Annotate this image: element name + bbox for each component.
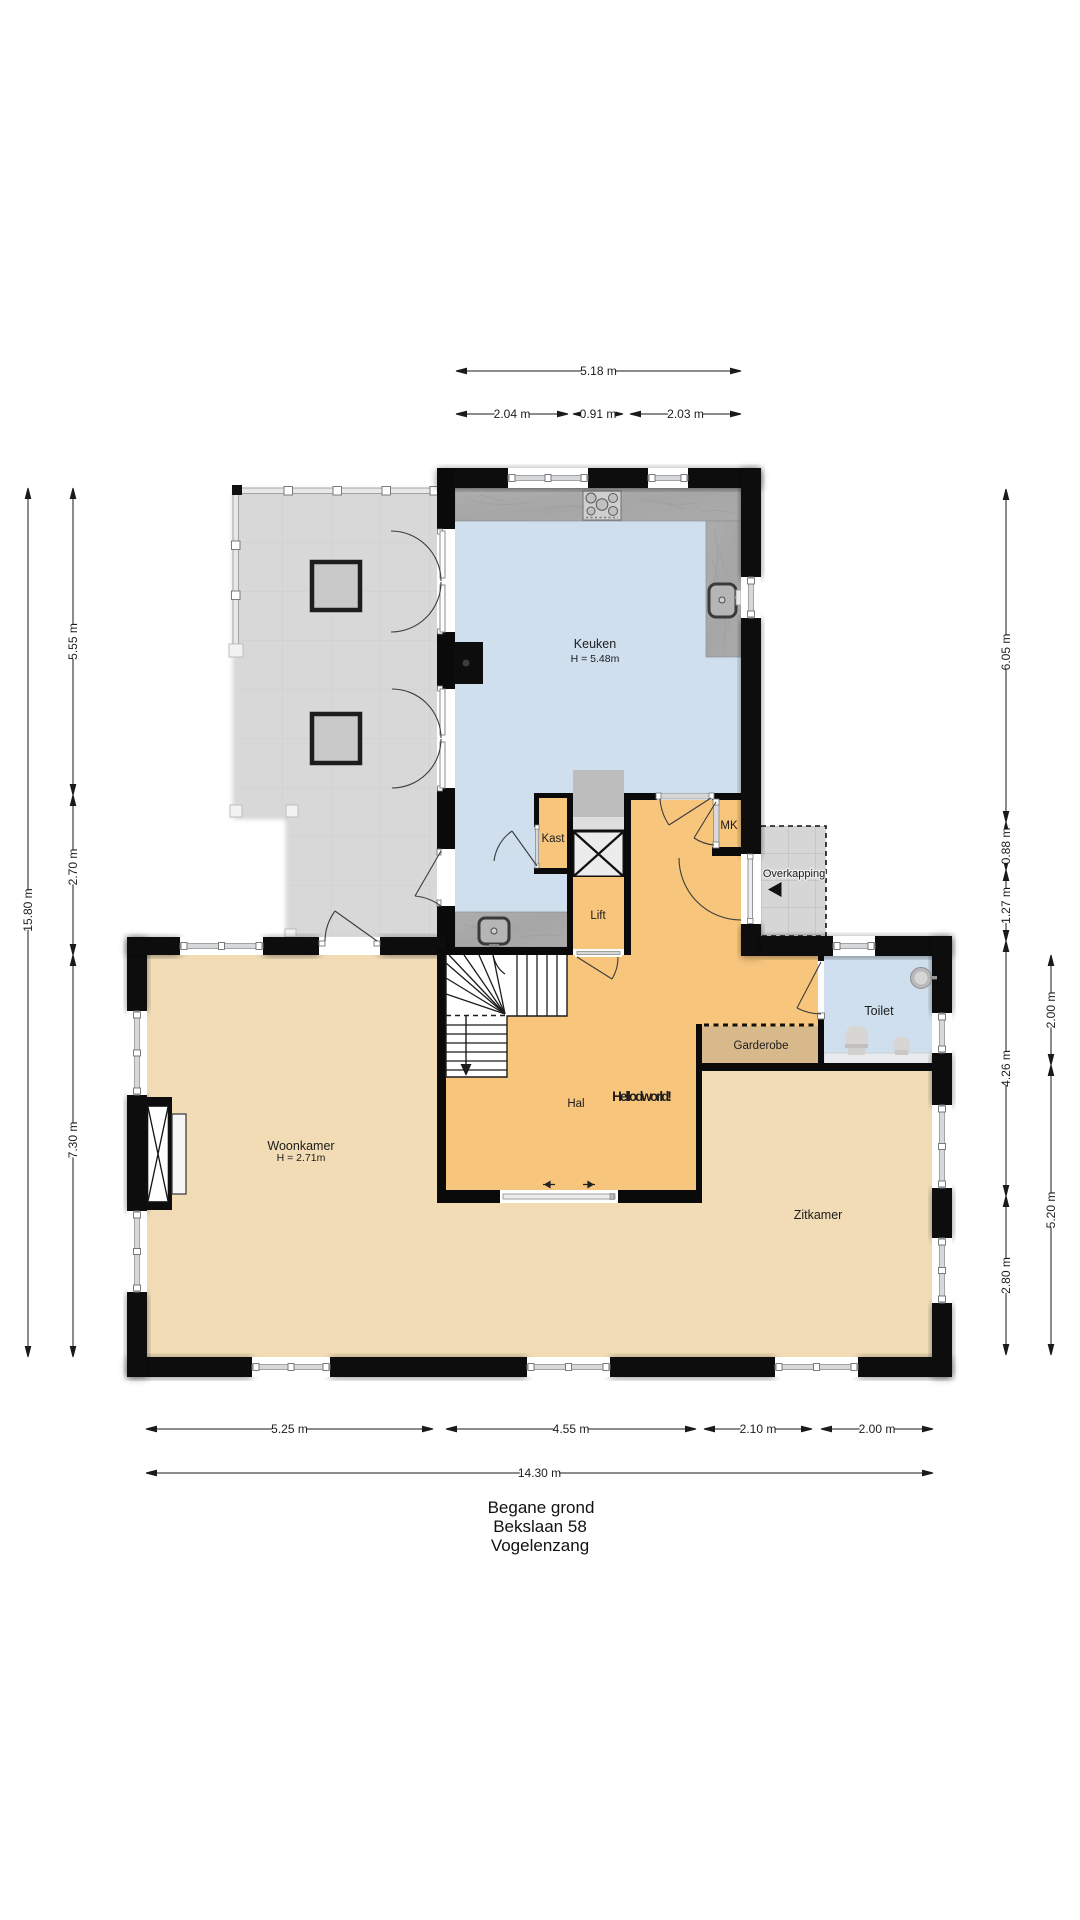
svg-text:14.30 m: 14.30 m xyxy=(518,1466,561,1480)
svg-text:Kast: Kast xyxy=(541,833,565,845)
svg-text:2.70 m: 2.70 m xyxy=(66,849,80,886)
svg-text:Lift: Lift xyxy=(590,910,606,922)
svg-text:5.18 m: 5.18 m xyxy=(580,364,617,378)
svg-text:Garderobe: Garderobe xyxy=(734,1040,789,1052)
svg-text:0.88 m: 0.88 m xyxy=(999,828,1013,865)
svg-text:2.04 m: 2.04 m xyxy=(494,407,531,421)
svg-text:15.80 m: 15.80 m xyxy=(21,888,35,931)
svg-text:4.26 m: 4.26 m xyxy=(999,1050,1013,1087)
svg-text:Woonkamer: Woonkamer xyxy=(267,1139,334,1153)
svg-text:H = 5.48m: H = 5.48m xyxy=(571,653,620,665)
svg-text:6.05 m: 6.05 m xyxy=(999,634,1013,671)
svg-text:Zitkamer: Zitkamer xyxy=(794,1208,843,1222)
svg-text:2.10 m: 2.10 m xyxy=(740,1422,777,1436)
svg-text:Toilet: Toilet xyxy=(864,1004,894,1018)
svg-text:Vogelenzang: Vogelenzang xyxy=(491,1536,589,1555)
svg-text:MK: MK xyxy=(720,820,738,832)
svg-text:0.91 m: 0.91 m xyxy=(580,407,617,421)
svg-text:Bekslaan 58: Bekslaan 58 xyxy=(493,1517,587,1536)
svg-text:Begane grond: Begane grond xyxy=(488,1498,595,1517)
svg-text:5.25 m: 5.25 m xyxy=(271,1422,308,1436)
svg-text:Hal: Hal xyxy=(567,1098,584,1110)
svg-text:2.00 m: 2.00 m xyxy=(1044,992,1058,1029)
svg-text:Keuken: Keuken xyxy=(574,637,616,651)
svg-text:5.55 m: 5.55 m xyxy=(66,623,80,660)
svg-text:5.20 m: 5.20 m xyxy=(1044,1192,1058,1229)
svg-text:2.00 m: 2.00 m xyxy=(859,1422,896,1436)
svg-text:2.03 m: 2.03 m xyxy=(667,407,704,421)
svg-text:2.80 m: 2.80 m xyxy=(999,1257,1013,1294)
svg-text:H = 2.71m: H = 2.71m xyxy=(277,1152,326,1164)
svg-text:Hellodworld!: Hellodworld! xyxy=(612,1089,671,1104)
svg-text:4.55 m: 4.55 m xyxy=(553,1422,590,1436)
svg-text:1.27 m: 1.27 m xyxy=(999,887,1013,924)
svg-text:Overkapping: Overkapping xyxy=(763,868,825,880)
svg-text:7.30 m: 7.30 m xyxy=(66,1122,80,1159)
